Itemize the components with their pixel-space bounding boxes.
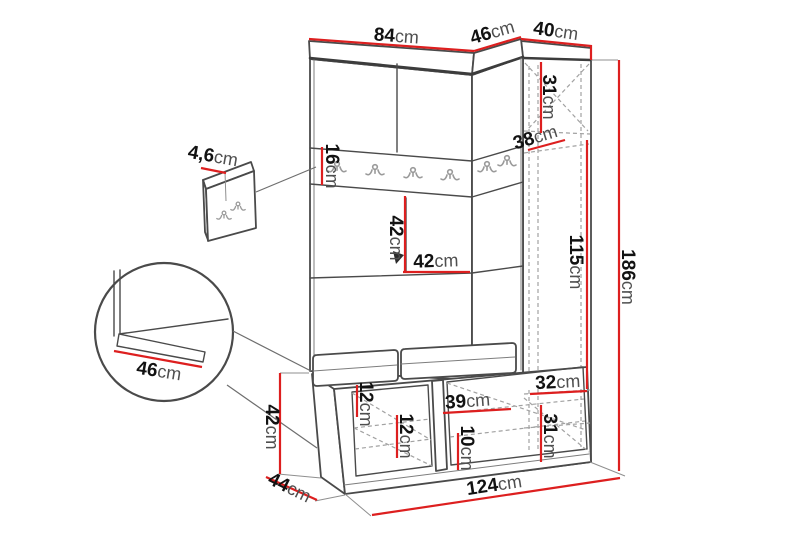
dim-label-115cm: 115cm — [565, 235, 586, 290]
furniture-dimension-drawing: 84cm 46cm 40cm 31cm 38cm 115cm 186cm 4,6… — [0, 0, 800, 533]
dim-label-32cm: 32cm — [535, 371, 581, 394]
dim-line-4-6cm — [201, 168, 226, 173]
wall-hook-panel — [203, 162, 256, 241]
dim-label-10cm: 10cm — [456, 425, 477, 470]
dim-label-4-6cm: 4,6cm — [186, 142, 239, 171]
dim-label-44cm: 44cm — [265, 469, 315, 508]
dim-label-12cm-a: 12cm — [355, 381, 376, 426]
right-cushion — [401, 343, 516, 379]
dim-label-84cm: 84cm — [373, 24, 419, 48]
dim-label-16cm: 16cm — [321, 143, 342, 188]
dim-label-42cm-vert: 42cm — [385, 215, 406, 260]
product-dimension-diagram: 84cm 46cm 40cm 31cm 38cm 115cm 186cm 4,6… — [0, 0, 800, 533]
dim-label-12cm-b: 12cm — [395, 413, 416, 458]
dim-label-31cm-bottom: 31cm — [539, 413, 560, 458]
dim-label-186cm: 186cm — [617, 249, 638, 305]
dim-label-31cm-top: 31cm — [538, 74, 559, 119]
panel-callout-line — [256, 167, 316, 192]
dim-label-42cm-bench: 42cm — [261, 404, 282, 449]
dim-label-42cm-horiz: 42cm — [413, 250, 459, 273]
